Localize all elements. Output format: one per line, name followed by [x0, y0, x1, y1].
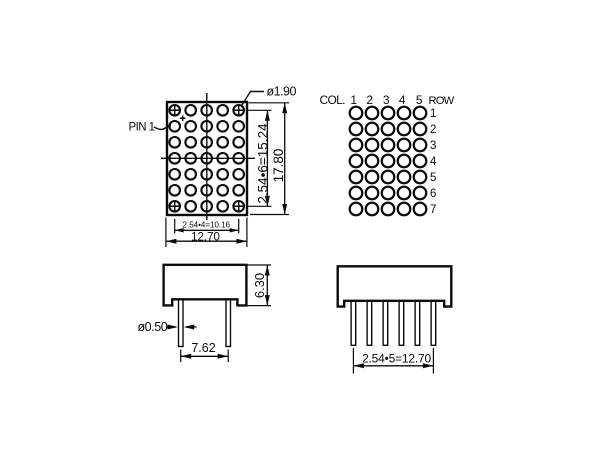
svg-text:1: 1 [350, 93, 357, 107]
svg-text:7: 7 [430, 204, 436, 216]
svg-text:4: 4 [399, 93, 406, 107]
svg-text:2.54•4=10.16: 2.54•4=10.16 [183, 221, 231, 230]
svg-text:2.54•5=12.70: 2.54•5=12.70 [362, 352, 431, 366]
svg-text:ROW: ROW [429, 95, 455, 107]
svg-text:5: 5 [416, 93, 423, 107]
svg-text:ø0.50: ø0.50 [138, 320, 168, 334]
svg-text:2: 2 [430, 124, 436, 136]
svg-text:6.30: 6.30 [252, 273, 267, 298]
svg-text:5: 5 [430, 172, 436, 184]
svg-text:6: 6 [430, 188, 436, 200]
svg-text:17.80: 17.80 [271, 149, 286, 183]
svg-text:PIN 1: PIN 1 [129, 122, 155, 134]
svg-text:2: 2 [366, 93, 373, 107]
svg-text:ø1.90: ø1.90 [267, 85, 297, 99]
svg-text:1: 1 [430, 108, 436, 120]
svg-text:3: 3 [383, 93, 390, 107]
svg-text:7.62: 7.62 [191, 341, 215, 355]
svg-text:4: 4 [430, 156, 437, 168]
svg-text:2.54•6=15.24: 2.54•6=15.24 [255, 123, 270, 204]
svg-text:12.70: 12.70 [191, 231, 220, 243]
svg-text:3: 3 [430, 140, 436, 152]
svg-text:COL.: COL. [320, 93, 346, 107]
